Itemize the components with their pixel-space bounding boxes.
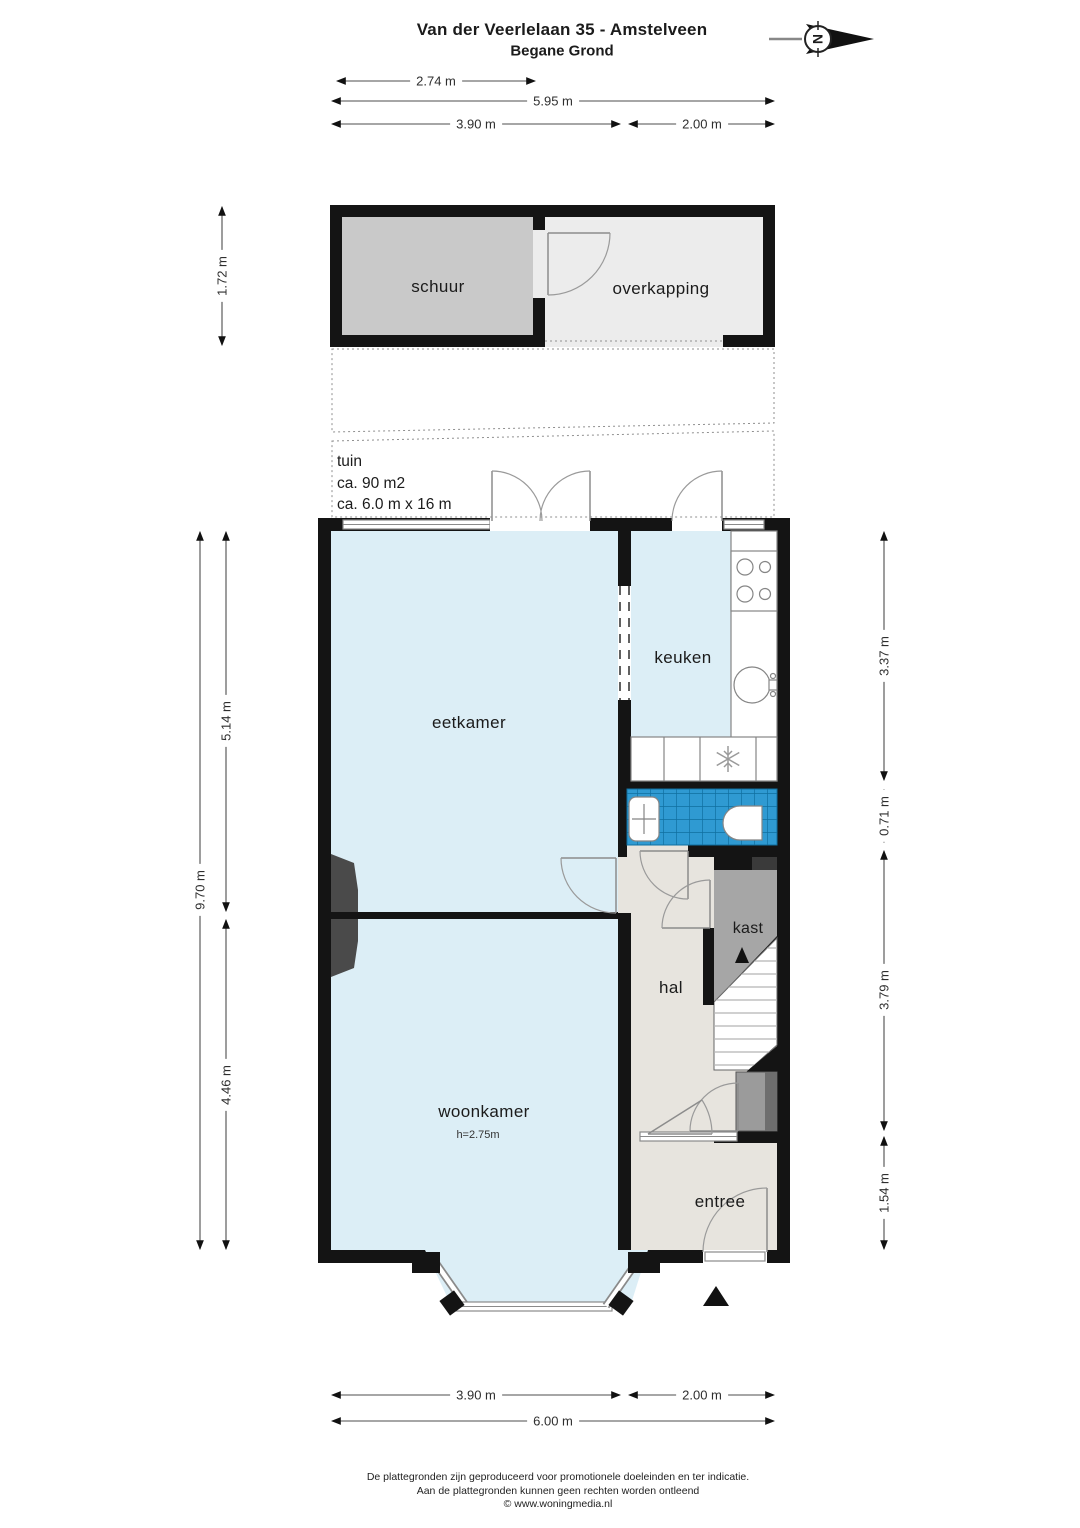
label-woonkamer: woonkamer	[438, 1102, 529, 1122]
compass-letter: N	[810, 34, 826, 44]
label-hal: hal	[659, 978, 683, 998]
label-kast: kast	[733, 920, 764, 938]
toilet-icon	[723, 806, 762, 840]
dim-toilet-depth: 0.71 m	[877, 790, 892, 842]
label-schuur: schuur	[411, 277, 464, 297]
dim-bottom-left: 3.90 m	[450, 1388, 502, 1403]
stove-icon	[731, 551, 777, 611]
label-woonkamer-height: h=2.75m	[456, 1129, 499, 1141]
dim-bottom-right: 2.00 m	[676, 1388, 728, 1403]
room-woonkamer	[331, 919, 618, 1250]
washbasin-icon	[629, 797, 659, 841]
label-eetkamer: eetkamer	[432, 713, 506, 733]
dim-eetkamer-depth: 5.14 m	[219, 695, 234, 747]
dim-keuken-depth: 3.37 m	[877, 630, 892, 682]
footer-copyright: © www.woningmedia.nl	[504, 1498, 613, 1510]
dim-top-right: 2.00 m	[676, 117, 728, 132]
label-tuin-area: ca. 90 m2	[337, 475, 405, 493]
label-overkapping: overkapping	[612, 279, 709, 299]
entrance-arrow-icon	[703, 1286, 729, 1306]
bay-window	[412, 1250, 660, 1316]
meterkast	[736, 1072, 777, 1131]
floorplan-page: Van der Veerlelaan 35 - Amstelveen Began…	[0, 0, 1080, 1528]
page-title: Van der Veerlelaan 35 - Amstelveen	[417, 20, 708, 40]
label-entree: entree	[695, 1192, 746, 1212]
main-house	[318, 471, 790, 1316]
french-doors-tuin	[490, 471, 590, 531]
dim-schuur-depth: 1.72 m	[215, 250, 230, 302]
dim-schuur-width: 2.74 m	[410, 74, 462, 89]
dim-house-width: 6.00 m	[527, 1414, 579, 1429]
label-keuken: keuken	[654, 648, 711, 668]
footer-disclaimer-1: De plattegronden zijn geproduceerd voor …	[367, 1471, 749, 1483]
dim-woonkamer-depth: 4.46 m	[219, 1059, 234, 1111]
dim-top-left: 3.90 m	[450, 117, 502, 132]
label-tuin: tuin	[337, 453, 362, 471]
label-tuin-size: ca. 6.0 m x 16 m	[337, 496, 452, 514]
floorplan-drawing	[0, 0, 1080, 1528]
open-wall-eetkamer-keuken	[618, 586, 631, 700]
dim-hal-depth: 3.79 m	[877, 964, 892, 1016]
dim-block-width: 5.95 m	[527, 94, 579, 109]
dim-house-depth: 9.70 m	[193, 864, 208, 916]
footer-disclaimer-2: Aan de plattegronden kunnen geen rechten…	[417, 1485, 700, 1497]
keuken-tuin-door	[672, 471, 722, 531]
duct-block	[752, 857, 777, 870]
dim-entree-depth: 1.54 m	[877, 1167, 892, 1219]
page-subtitle: Begane Grond	[510, 43, 613, 60]
schuur-overkapping-block	[330, 205, 775, 347]
